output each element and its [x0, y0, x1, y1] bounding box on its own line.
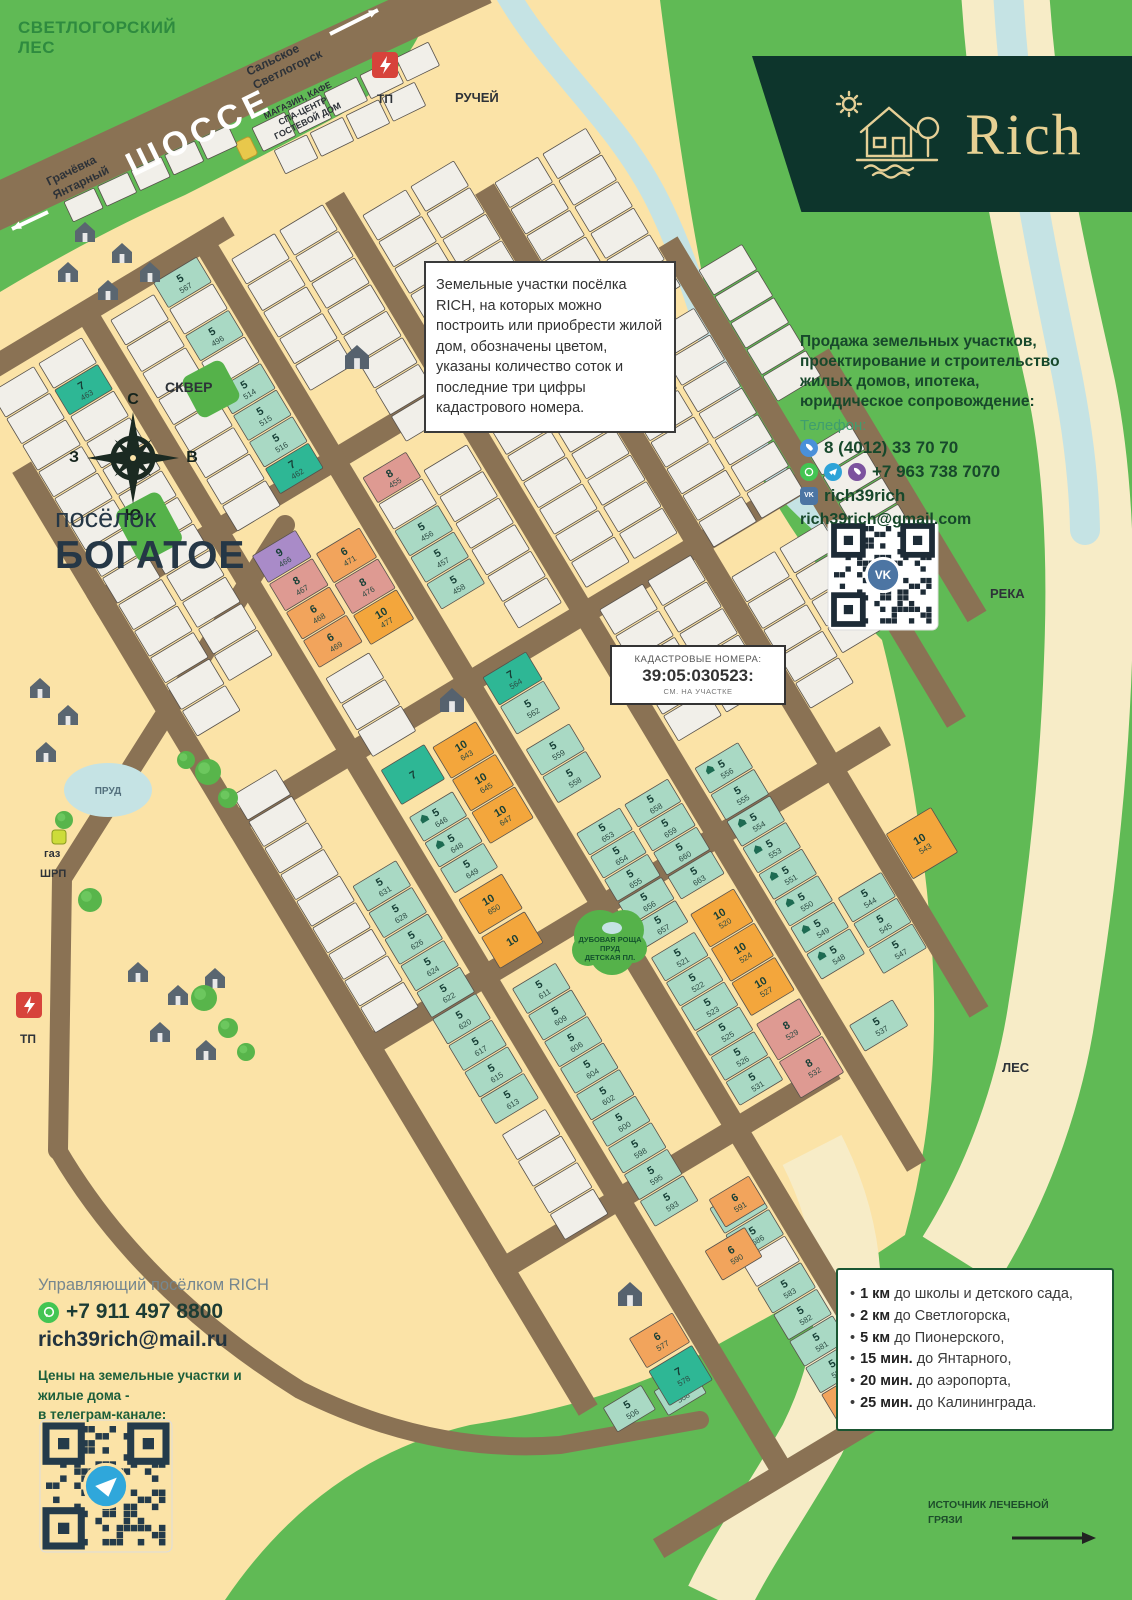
rich-house-icon — [831, 88, 951, 180]
house-icon — [58, 705, 78, 725]
pond-label: ПРУД — [95, 786, 122, 797]
cadastre-box: КАДАСТРОВЫЕ НОМЕРА: 39:05:030523: СМ. НА… — [610, 645, 786, 705]
house-icon — [128, 962, 148, 982]
sales-contacts: Продажа земельных участков, проектирован… — [800, 332, 1122, 529]
sales-vk[interactable]: VK rich39rich — [800, 486, 1122, 506]
stream-label: РУЧЕЙ — [455, 90, 499, 105]
grove-label: ДУБОВАЯ РОЩА — [578, 935, 642, 944]
house-icon — [196, 1040, 216, 1060]
phone-icon — [800, 439, 818, 457]
tree-icon — [239, 1045, 247, 1053]
manager-email[interactable]: rich39rich@mail.ru — [38, 1328, 269, 1352]
rich-logo-text: Rich — [965, 101, 1083, 168]
grove-pond — [602, 922, 622, 934]
grove-label: ДЕТСКАЯ ПЛ. — [585, 953, 636, 962]
distance-item: •20 мин. до аэропорта, — [850, 1371, 1100, 1393]
info-box: Земельные участки посёлка RICH, на котор… — [424, 261, 676, 433]
distance-item: •15 мин. до Янтарного, — [850, 1349, 1100, 1371]
house-icon — [168, 985, 188, 1005]
sales-email[interactable]: rich39rich@gmail.com — [800, 511, 1122, 529]
forest-top-label: СВЕТЛОГОРСКИЙЛЕС — [18, 18, 176, 57]
telegram-qr-code[interactable] — [40, 1420, 172, 1552]
sales-phone-1[interactable]: 8 (4012) 33 70 70 — [800, 438, 1122, 458]
distance-item: •2 км до Светлогорска, — [850, 1306, 1100, 1328]
house-icon — [205, 968, 225, 988]
manager-contacts: Управляющий посёлком RICH +7 911 497 880… — [38, 1276, 269, 1425]
tree-icon — [194, 988, 206, 1000]
shrp-label: ШРП — [40, 868, 66, 880]
manager-title: Управляющий посёлком RICH — [38, 1276, 269, 1295]
vk-icon: VK — [800, 487, 818, 505]
viber-icon — [848, 463, 866, 481]
tree-icon — [198, 762, 210, 774]
distance-item: •5 км до Пионерского, — [850, 1328, 1100, 1350]
tp-left-label: ТП — [20, 1032, 36, 1046]
sales-phone-2[interactable]: +7 963 738 7070 — [800, 462, 1122, 482]
manager-phone[interactable]: +7 911 497 8800 — [38, 1300, 269, 1324]
forest-right-label: ЛЕС — [1002, 1060, 1029, 1075]
house-icon — [30, 678, 50, 698]
skver-label: СКВЕР — [165, 379, 212, 395]
house-icon — [150, 1022, 170, 1042]
prices-note: Цены на земельные участки ижилые дома -в… — [38, 1366, 269, 1425]
compass-letter: З — [69, 449, 79, 466]
tp-transformer-icon — [372, 52, 398, 78]
phone-label: Телефон: — [800, 417, 1122, 434]
house-icon — [36, 742, 56, 762]
rich-logo-banner: Rich — [752, 56, 1132, 212]
house-icon — [112, 243, 132, 263]
vk-icon: VK — [875, 569, 892, 582]
telegram-icon — [824, 463, 842, 481]
compass-letter: С — [127, 391, 139, 408]
whatsapp-icon — [38, 1302, 59, 1323]
tp-transformer-icon — [16, 992, 42, 1018]
distance-item: •1 км до школы и детского сада, — [850, 1284, 1100, 1306]
tree-icon — [221, 1021, 230, 1030]
river-label: РЕКА — [990, 586, 1025, 601]
house-icon — [58, 262, 78, 282]
tree-icon — [179, 753, 187, 761]
tree-icon — [57, 813, 65, 821]
village-title: посёлок БОГАТОЕ — [55, 503, 245, 578]
gas-icon — [52, 830, 66, 844]
compass-letter: В — [186, 449, 198, 466]
tp-top-label: ТП — [377, 92, 393, 106]
tree-icon — [81, 891, 92, 902]
mud-spring-label: ИСТОЧНИК ЛЕЧЕБНОЙГРЯЗИ — [928, 1498, 1049, 1527]
distance-item: •25 мин. до Калининграда. — [850, 1393, 1100, 1415]
map-canvas: 7463563156285626562456225620561756155613… — [0, 0, 1132, 1600]
whatsapp-icon — [800, 463, 818, 481]
grove-label: ПРУД — [600, 944, 621, 953]
tree-icon — [221, 791, 230, 800]
gas-label: газ — [44, 848, 60, 860]
vk-qr-code[interactable]: VK — [828, 520, 938, 630]
house-icon — [618, 1282, 642, 1306]
distances-box: •1 км до школы и детского сада,•2 км до … — [836, 1268, 1114, 1431]
